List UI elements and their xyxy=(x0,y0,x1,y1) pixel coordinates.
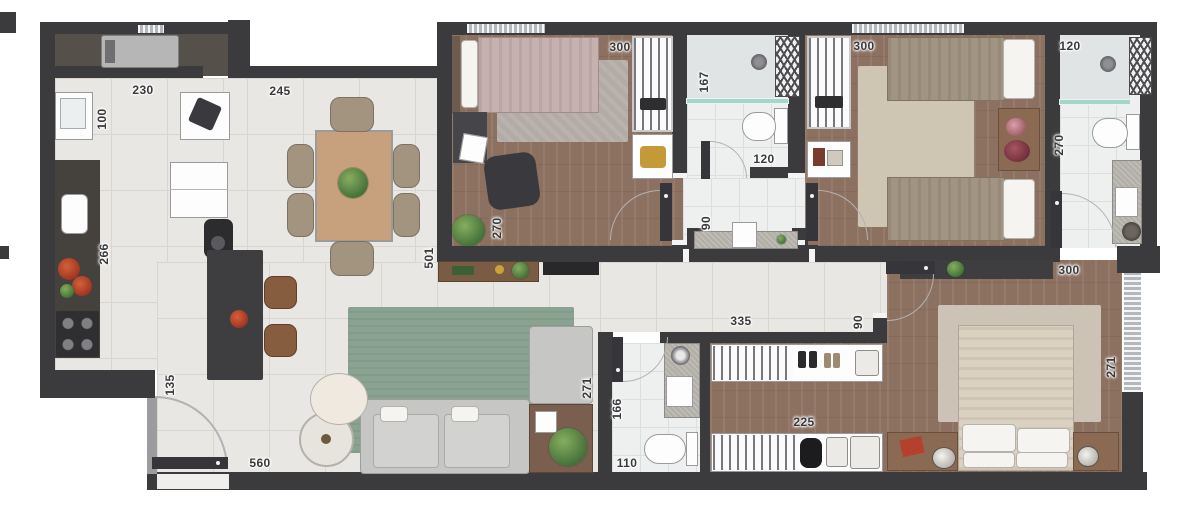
duct-shaft-bath2 xyxy=(1129,37,1152,95)
sideboard-plant xyxy=(512,262,529,279)
shelf-books xyxy=(827,150,843,166)
refrigerator xyxy=(170,162,228,218)
lavabo-vessel-sink xyxy=(671,346,690,365)
door-handle xyxy=(1055,201,1059,205)
closet-shoes xyxy=(833,353,840,368)
bed2b-mattress xyxy=(887,177,1005,241)
wall-bottom xyxy=(147,472,1147,490)
wall-hall-south-b xyxy=(660,332,887,343)
kitchen-oven-dial xyxy=(211,236,225,250)
bed2a-pillow xyxy=(1003,39,1035,99)
sofa-cushion xyxy=(444,414,510,468)
kitchen-sink-top-basin xyxy=(60,98,86,129)
sofa-cushion xyxy=(373,414,439,468)
wall-lavabo-left xyxy=(598,332,612,473)
bed2b-pillow xyxy=(1003,179,1035,239)
sofa-chaise xyxy=(529,326,593,404)
hall-plant xyxy=(777,235,786,244)
shelf-items xyxy=(640,146,666,168)
bath2-vessel-bowl xyxy=(1122,222,1141,241)
wardrobe-shoes xyxy=(815,96,843,108)
dining-chair xyxy=(393,144,420,188)
table-candle xyxy=(321,434,331,444)
jamb-cap xyxy=(683,249,689,262)
dining-chair xyxy=(330,241,374,276)
wall-bedroom1-bottom xyxy=(437,246,683,262)
jamb-cap xyxy=(873,313,887,318)
door-handle xyxy=(664,194,668,198)
toilet-bowl xyxy=(1092,118,1128,148)
shower2-head xyxy=(1100,56,1116,72)
wall-suite-right-bottom xyxy=(1122,392,1143,474)
closet-clothes-top xyxy=(713,346,793,380)
bar-stool xyxy=(264,324,297,357)
bed1-headboard xyxy=(452,36,460,114)
dining-chair xyxy=(393,193,420,237)
jamb-cap xyxy=(672,240,687,245)
floor-plan-canvas: 2301002452661355605012703001671209030012… xyxy=(0,0,1200,518)
bed1-pillow xyxy=(461,40,478,108)
door-handle xyxy=(216,461,220,465)
dining-chair xyxy=(330,97,374,132)
nightstand-flowers xyxy=(1006,118,1026,136)
door-handle xyxy=(616,368,620,372)
bed1-mattress xyxy=(478,37,599,113)
wall-bedroom1-left xyxy=(437,22,452,262)
wall-bath1-left xyxy=(672,35,687,178)
dining-chair xyxy=(287,144,314,188)
dining-chair xyxy=(287,193,314,237)
side-table-plant xyxy=(549,428,587,466)
shelf-books xyxy=(813,148,825,166)
bath2-door-leaf xyxy=(1051,191,1062,248)
closet-clothes-bottom xyxy=(713,435,798,470)
suite-bed-pillow xyxy=(963,452,1015,468)
toilet-bowl xyxy=(742,112,776,141)
washing-machine-panel xyxy=(105,40,115,63)
wall-dining-top xyxy=(247,66,443,78)
exterior-fin-top xyxy=(0,12,16,33)
closet-shoes xyxy=(798,351,806,368)
closet-bag xyxy=(800,438,822,468)
shower1-glass-screen xyxy=(687,99,788,103)
toilet-tank xyxy=(1126,114,1140,150)
suite-bed-pillow xyxy=(962,424,1016,452)
closet-basket xyxy=(850,436,880,469)
bedroom1-wardrobe-rack xyxy=(632,36,673,132)
bath2-sink xyxy=(1115,187,1138,217)
closet-shoes xyxy=(824,353,831,368)
sideboard-decor xyxy=(452,266,474,275)
closet-shoes xyxy=(809,351,817,368)
exterior-fin-mid xyxy=(0,246,9,259)
closet-basket xyxy=(826,437,848,467)
sofa-pillow xyxy=(380,406,408,422)
counter-flowers xyxy=(72,276,92,296)
shower2-glass-screen xyxy=(1060,100,1130,104)
refrigerator-door-line xyxy=(170,189,228,190)
lavabo-cabinet xyxy=(666,376,693,407)
wall-suite-right-top xyxy=(1122,258,1143,273)
bedroom2-window xyxy=(852,24,964,33)
sideboard-candle xyxy=(495,265,504,274)
corridor-floor xyxy=(600,262,887,332)
entry-door-sill xyxy=(157,474,229,489)
jamb-cap xyxy=(788,173,805,178)
laundry-window xyxy=(138,25,164,33)
door-handle xyxy=(810,194,814,198)
wall-lavabo-closet xyxy=(700,343,710,472)
rug-throw-pillow xyxy=(310,373,368,425)
jamb-cap xyxy=(809,249,815,262)
toilet-tank xyxy=(686,432,698,466)
counter-greenery xyxy=(60,284,74,298)
bedroom2-wardrobe-rack xyxy=(807,36,851,129)
bed2a-mattress xyxy=(887,37,1005,101)
tv xyxy=(543,262,599,275)
island-flowers xyxy=(230,310,248,328)
console-plant xyxy=(947,261,964,277)
duct-shaft-bath1 xyxy=(775,36,800,97)
suite-bed-pillow xyxy=(1017,428,1070,453)
nightstand-lamp xyxy=(932,447,956,469)
shower2-floor xyxy=(1060,33,1130,101)
lavabo-door-leaf xyxy=(612,337,623,382)
bedroom1-door-leaf xyxy=(660,183,672,241)
jamb-cap xyxy=(672,173,687,178)
nightstand-flowers xyxy=(1004,140,1030,162)
kitchen-sink-left xyxy=(61,194,88,234)
suite-window xyxy=(1124,273,1141,392)
side-table-frame xyxy=(535,411,557,433)
bath1-door-leaf xyxy=(701,141,710,179)
toilet-bowl xyxy=(644,434,686,464)
bedroom1-window xyxy=(467,24,545,33)
wall-jog-bottom-left xyxy=(43,370,155,398)
wall-alcove-south xyxy=(683,248,815,262)
toilet-tank xyxy=(774,108,788,144)
bar-stool xyxy=(264,276,297,309)
cooktop xyxy=(56,311,99,357)
door-handle xyxy=(924,266,928,270)
wardrobe-shoes xyxy=(640,98,666,110)
closet-basket xyxy=(855,350,879,376)
nightstand-lamp xyxy=(1077,446,1099,467)
hall-sink xyxy=(732,222,757,248)
sofa-pillow xyxy=(451,406,479,422)
wall-left xyxy=(40,22,55,398)
bedroom2-door-leaf xyxy=(806,183,818,241)
dining-centerpiece-plant xyxy=(338,168,368,198)
suite-bed-pillow xyxy=(1016,452,1068,468)
desk-chair xyxy=(482,151,541,212)
bedroom1-plant xyxy=(452,215,485,246)
shower1-head xyxy=(751,54,767,70)
desk-papers xyxy=(459,133,488,164)
